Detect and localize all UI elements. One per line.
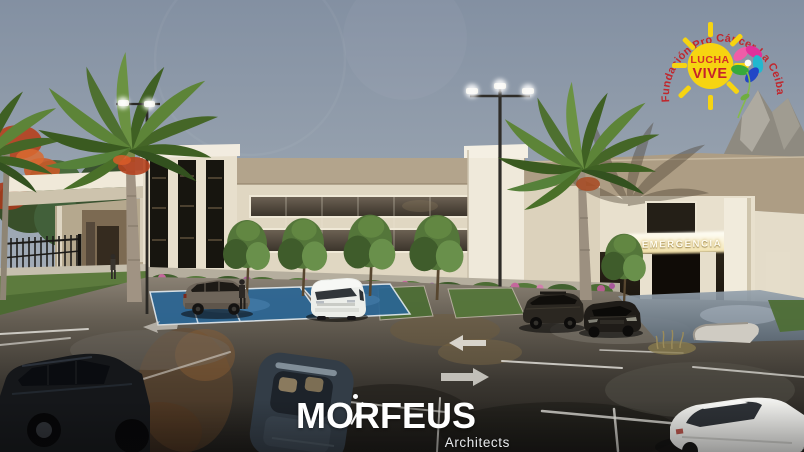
palm-flowers: [576, 177, 600, 191]
car-minivan-white: [306, 278, 368, 322]
foundation-logo: Fundación Pro Cáncer La Ceiba LUCHA VIVE: [646, 2, 800, 130]
entrance-door: [97, 226, 119, 270]
emergencia-sign-label: EMERGENCIA: [630, 235, 734, 253]
morfeus-watermark: MORFEUS Architects: [296, 398, 516, 450]
morfeus-brand: MORFEUS: [296, 398, 516, 434]
architectural-rendering: EMERGENCIA Fundación Pro Cáncer La Ceiba…: [0, 0, 804, 452]
emergencia-text: EMERGENCIA: [642, 238, 723, 250]
foundation-logo-svg: Fundación Pro Cáncer La Ceiba LUCHA VIVE: [646, 2, 800, 130]
white-pilaster: [468, 150, 524, 290]
logo-word-lucha: LUCHA: [690, 54, 729, 66]
morfeus-subtitle: Architects: [296, 435, 516, 450]
lobby-window: [646, 202, 696, 234]
curb-island: [694, 323, 759, 343]
morfeus-o-dot-icon: [353, 394, 358, 399]
flower-icon: [730, 43, 764, 118]
logo-word-vive: VIVE: [692, 66, 727, 82]
